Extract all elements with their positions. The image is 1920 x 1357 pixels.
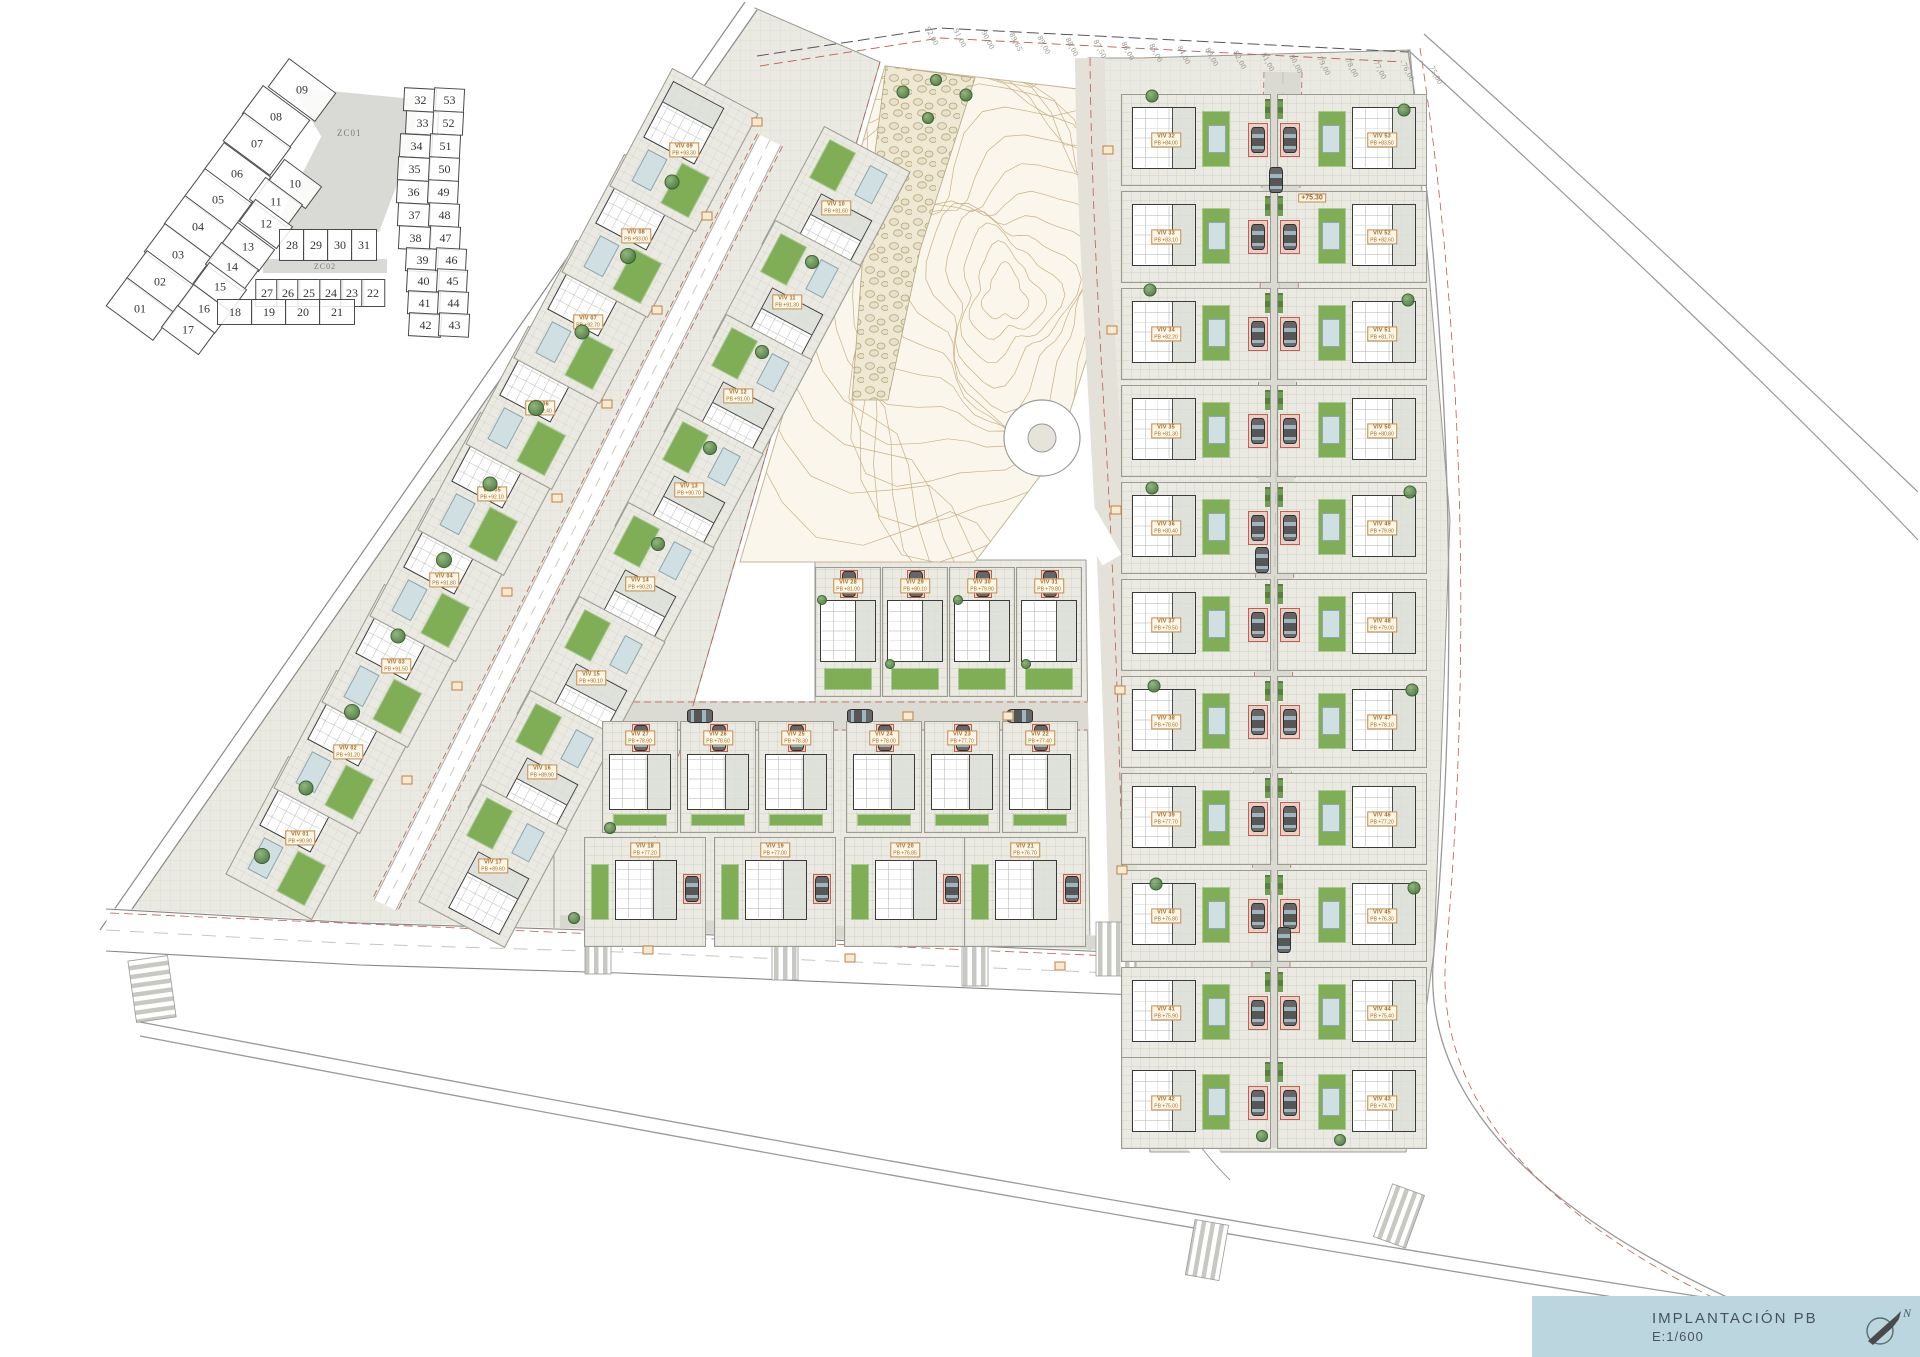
plot-number: 30	[334, 238, 346, 253]
north-arrow-icon: N	[1858, 1305, 1918, 1349]
key-plan-plot: 30	[327, 229, 353, 261]
svg-text:N: N	[1902, 1306, 1912, 1320]
drawing-scale: E:1/600	[1652, 1329, 1818, 1344]
plot-number: 13	[242, 240, 254, 255]
site-plan-canvas: ZC01 ZC02 090807060504030201 10111213141…	[0, 0, 1920, 1357]
plot-number: 34	[410, 139, 422, 154]
plot-number: 49	[437, 185, 449, 200]
key-plan-plot: 21	[319, 299, 355, 325]
plot-number: 44	[447, 296, 459, 311]
plot-number: 46	[445, 253, 457, 268]
plot-number: 50	[438, 162, 450, 177]
plot-number: 31	[358, 238, 370, 253]
plot-number: 01	[134, 302, 146, 317]
key-plan-plot: 37	[397, 202, 431, 228]
plot-number: 07	[251, 137, 263, 152]
plot-number: 15	[214, 280, 226, 295]
drawing-title: IMPLANTACIÓN PB	[1652, 1310, 1818, 1327]
title-block-text: IMPLANTACIÓN PB E:1/600	[1652, 1310, 1818, 1344]
key-plan-plot: 29	[303, 229, 329, 261]
plot-number: 36	[407, 185, 419, 200]
key-plan-plot: 28	[279, 229, 305, 261]
key-plan-plot: 50	[428, 156, 460, 182]
plot-number: 08	[270, 110, 282, 125]
plot-number: 32	[414, 93, 426, 108]
key-plan: ZC01 ZC02 090807060504030201 10111213141…	[85, 52, 495, 392]
plot-number: 47	[439, 231, 451, 246]
plot-number: 38	[409, 231, 421, 246]
plot-number: 05	[212, 193, 224, 208]
plot-number: 18	[229, 305, 241, 320]
plot-number: 22	[367, 286, 379, 301]
zone-zc02-label: ZC02	[314, 262, 336, 271]
plot-number: 41	[418, 296, 430, 311]
zone-zc01-label: ZC01	[337, 128, 362, 138]
plot-number: 52	[442, 116, 454, 131]
key-plan-plot: 22	[361, 279, 385, 307]
plot-number: 04	[192, 220, 204, 235]
plot-number: 39	[416, 253, 428, 268]
plot-number: 02	[154, 275, 166, 290]
plot-number: 17	[182, 323, 194, 338]
plot-number: 11	[270, 195, 282, 210]
plot-number: 10	[289, 177, 301, 192]
key-plan-plot: 48	[428, 202, 460, 228]
key-plan-plot: 18	[217, 299, 253, 325]
plot-number: 20	[297, 305, 309, 320]
plot-number: 42	[419, 318, 431, 333]
plot-number: 19	[263, 305, 275, 320]
plot-number: 51	[439, 139, 451, 154]
plot-number: 28	[286, 238, 298, 253]
key-plan-plot: 53	[433, 87, 465, 113]
plot-number: 06	[231, 167, 243, 182]
plot-number: 53	[443, 93, 455, 108]
plot-number: 37	[408, 208, 420, 223]
key-plan-plot: 52	[432, 110, 464, 136]
plot-number: 43	[448, 318, 460, 333]
key-plan-plot: 20	[285, 299, 321, 325]
key-plan-plot: 31	[351, 229, 377, 261]
key-plan-plot: 51	[429, 133, 461, 159]
plot-number: 14	[226, 260, 238, 275]
key-plan-zone-zc02: ZC02	[263, 259, 387, 273]
key-plan-plot: 43	[438, 312, 470, 338]
plot-number: 09	[296, 83, 308, 98]
plot-number: 48	[438, 208, 450, 223]
plot-number: 16	[198, 302, 210, 317]
title-block: IMPLANTACIÓN PB E:1/600 N	[1532, 1296, 1920, 1357]
plot-number: 29	[310, 238, 322, 253]
plot-number: 33	[416, 116, 428, 131]
plot-number: 12	[260, 217, 272, 232]
plot-number: 40	[417, 274, 429, 289]
plot-number: 21	[331, 305, 343, 320]
plot-number: 45	[446, 274, 458, 289]
plot-number: 35	[408, 162, 420, 177]
key-plan-plot: 19	[251, 299, 287, 325]
plot-number: 03	[172, 248, 184, 263]
key-plan-plot: 36	[396, 179, 430, 205]
key-plan-plot: 49	[427, 179, 459, 205]
key-plan-plot: 35	[397, 156, 431, 182]
